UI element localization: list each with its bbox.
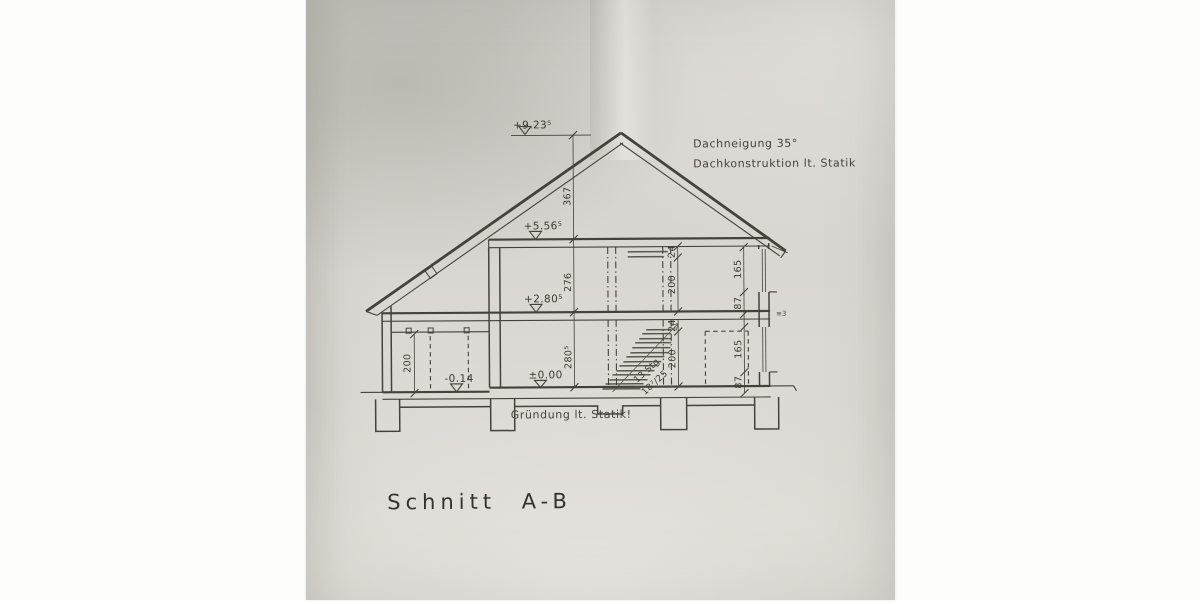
level-marker-attic: +5.56⁵ xyxy=(524,220,563,239)
ground-floor-slab xyxy=(361,386,797,400)
roof-pitch-note: Dachneigung 35° xyxy=(693,137,798,151)
level-marker-ground: ±0.00 xyxy=(528,369,562,387)
section-drawing: 13 Stg 18⁷/25 367 276 280⁵ 24 200 24 200 xyxy=(0,0,1200,604)
dim-ground-storey: 280⁵ xyxy=(563,345,574,369)
upper-floor-slab xyxy=(382,311,770,321)
level-marker-upper: +2.80⁵ xyxy=(524,293,563,312)
foundation-note: Gründung lt. Statik! xyxy=(511,408,632,422)
dim-ground-window: 165 xyxy=(733,339,744,358)
dim-upper-door: 200 xyxy=(667,275,678,294)
upper-window xyxy=(762,249,777,292)
level-attic-value: +5.56⁵ xyxy=(524,220,563,232)
attic-floor-slab xyxy=(489,238,770,248)
level-ridge-value: +9.23⁵ xyxy=(513,119,552,131)
level-ground-value: ±0.00 xyxy=(528,369,562,381)
center-dimension-chain xyxy=(511,131,593,391)
level-marker-grade: -0.14 xyxy=(444,373,473,392)
exterior-wall-right xyxy=(759,243,778,386)
dim-carport-door: 200 xyxy=(402,353,413,372)
dim-ridge-height: 367 xyxy=(562,186,573,205)
dim-upper-window: 165 xyxy=(733,259,744,278)
dim-ground-parapet: 87 xyxy=(733,376,744,389)
level-grade-value: -0.14 xyxy=(444,373,473,385)
scanned-plan-page: 13 Stg 18⁷/25 367 276 280⁵ 24 200 24 200 xyxy=(0,0,1200,600)
dim-upper-lintel: 24 xyxy=(667,245,678,258)
ground-window xyxy=(763,327,778,372)
dim-ground-door: 200 xyxy=(667,349,678,368)
section-title: Schnitt A-B xyxy=(387,489,572,514)
exterior-wall-carport xyxy=(382,306,392,392)
dim-upper-parapet: 87 xyxy=(733,297,744,310)
dim-ground-lintel: 24 xyxy=(667,319,678,332)
roof-construction-note: Dachkonstruktion lt. Statik xyxy=(693,156,856,170)
dim-upper-storey: 276 xyxy=(563,272,574,291)
slab-edge-mark: ≡3 xyxy=(776,310,786,318)
level-marker-ridge: +9.23⁵ xyxy=(513,119,552,134)
level-upper-value: +2.80⁵ xyxy=(524,293,563,305)
exterior-wall-left-main xyxy=(489,248,501,388)
